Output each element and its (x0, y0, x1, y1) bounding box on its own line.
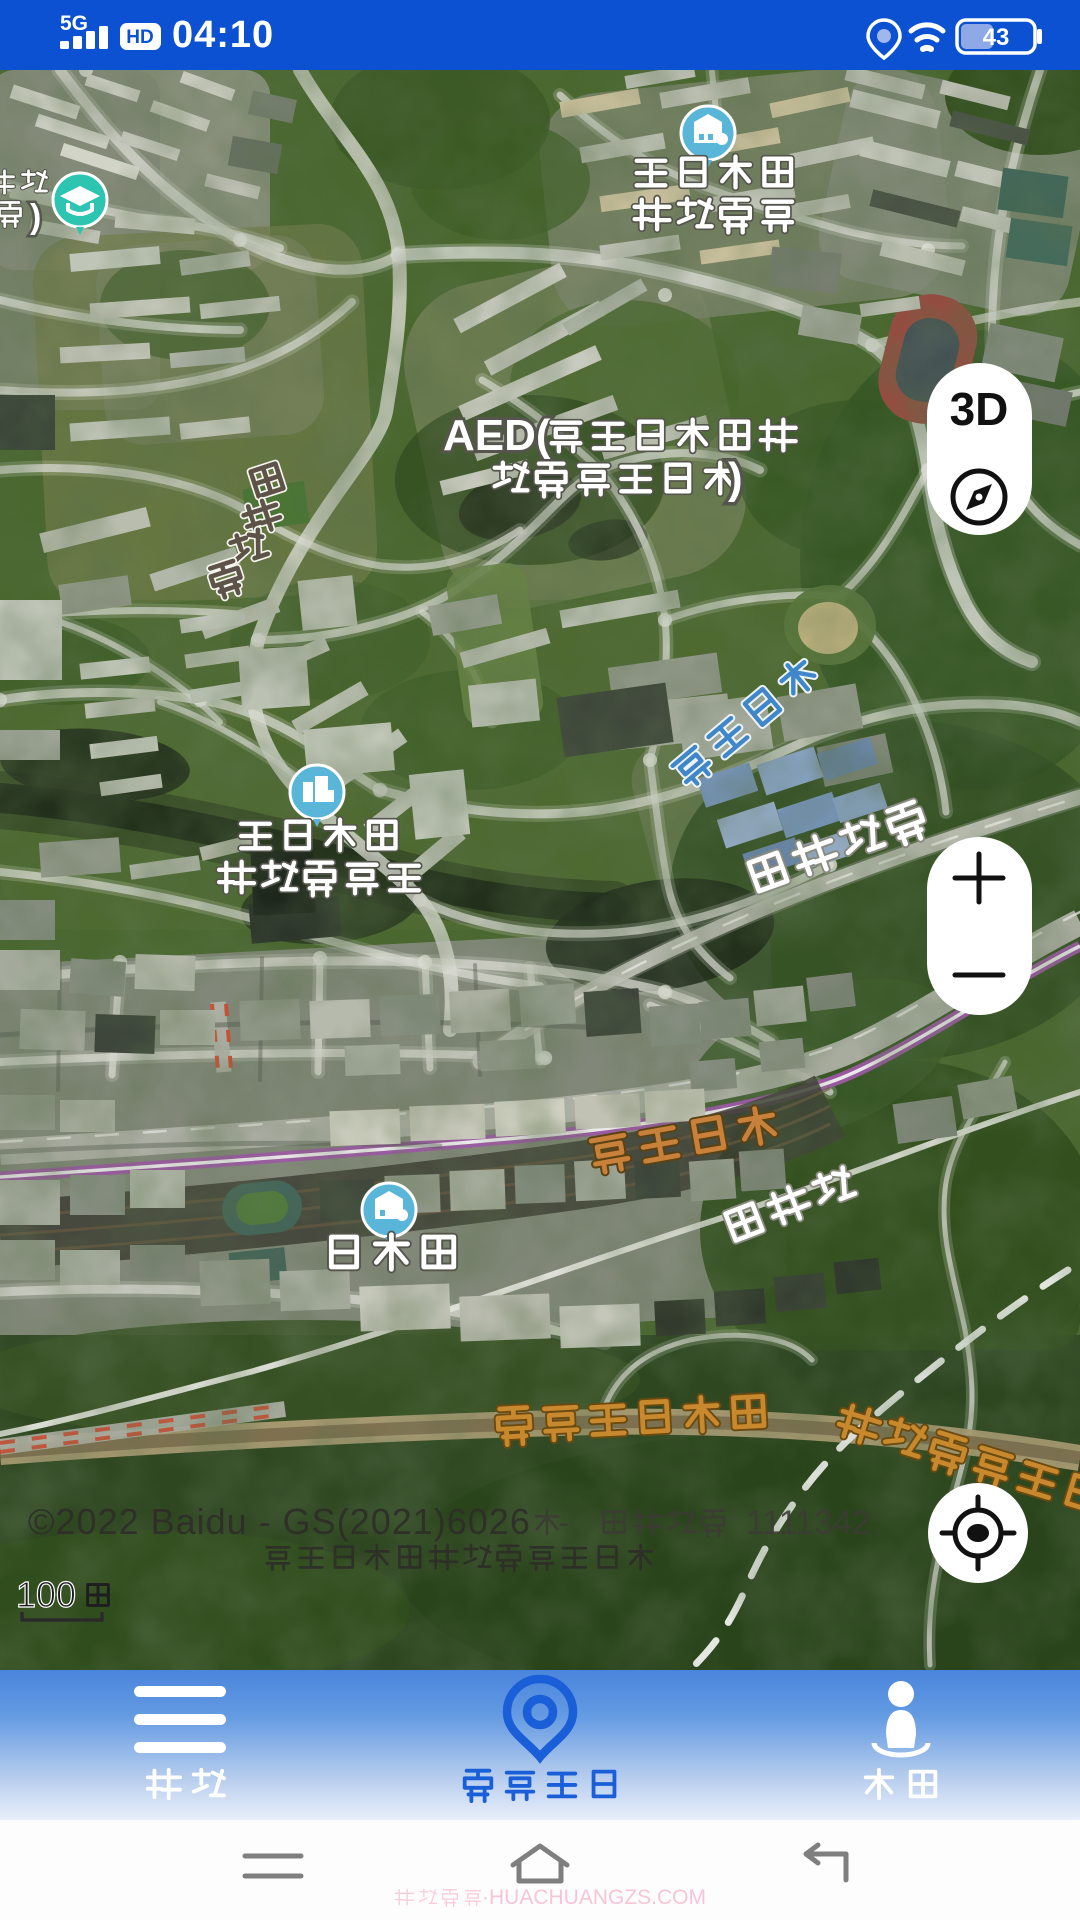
svg-text:3D: 3D (950, 383, 1009, 435)
svg-text:43: 43 (983, 24, 1010, 51)
svg-text:HD: HD (126, 27, 153, 48)
svg-text:-: - (558, 1504, 569, 1542)
svg-text:©2022 Baidu - GS(2021)6026: ©2022 Baidu - GS(2021)6026 (28, 1501, 531, 1542)
svg-text:5G: 5G (60, 12, 88, 35)
svg-text:AED(: AED( (443, 411, 551, 460)
svg-text:): ) (30, 198, 41, 236)
svg-text:100: 100 (16, 1574, 76, 1615)
svg-text:·HUACHUANGZS.COM: ·HUACHUANGZS.COM (482, 1886, 706, 1909)
svg-text:04:10: 04:10 (172, 14, 274, 56)
svg-text:): ) (728, 454, 743, 503)
svg-text:1111342: 1111342 (746, 1504, 871, 1542)
